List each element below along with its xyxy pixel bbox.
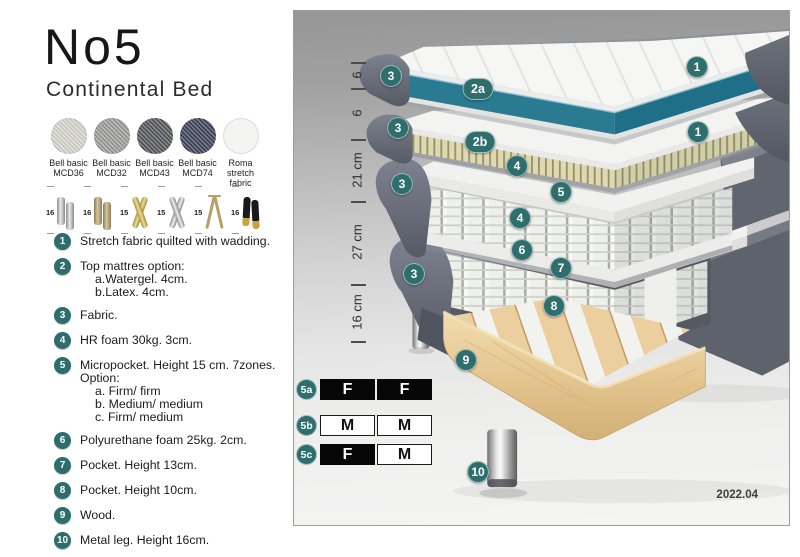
cross-silver-leg-icon bbox=[166, 195, 190, 231]
list-item: 8Pocket. Height 10cm. bbox=[54, 482, 299, 499]
list-item-text: HR foam 30kg. 3cm. bbox=[80, 332, 192, 349]
firmness-cells: MM bbox=[320, 415, 432, 436]
callout-4: 4 bbox=[506, 155, 528, 177]
list-item-number: 6 bbox=[54, 432, 71, 449]
firmness-cell: F bbox=[377, 379, 432, 400]
leg-bar bbox=[57, 197, 65, 225]
callout-5: 5 bbox=[550, 181, 572, 203]
fabric-swatch-label: Romastretch fabric bbox=[219, 158, 262, 188]
leg-height-label: 16 bbox=[46, 208, 55, 217]
leg-bar bbox=[103, 202, 111, 230]
cross-gold-leg-icon bbox=[129, 195, 153, 231]
product-subtitle: Continental Bed bbox=[46, 78, 213, 102]
black-gold-leg-icon bbox=[240, 195, 264, 231]
list-item: 10Metal leg. Height 16cm. bbox=[54, 532, 299, 549]
scale-label: 6 bbox=[350, 71, 365, 78]
firmness-cell: M bbox=[377, 444, 432, 465]
scale-label: 6 bbox=[350, 109, 365, 116]
leg-option: 16 bbox=[231, 185, 268, 235]
leg-option: 16 bbox=[46, 185, 83, 235]
list-item-line: Pocket. Height 10cm. bbox=[80, 484, 197, 497]
fabric-swatch-list: Bell basicMCD36Bell basicMCD32Bell basic… bbox=[47, 118, 262, 188]
list-item-text: Top mattres option:a.Watergel. 4cm.b.Lat… bbox=[80, 258, 188, 299]
callout-2a: 2a bbox=[463, 78, 494, 100]
list-item-line: Stretch fabric quilted with wadding. bbox=[80, 235, 270, 248]
list-item-line: Fabric. bbox=[80, 309, 118, 322]
callout-8: 8 bbox=[543, 295, 565, 317]
leg-bar bbox=[94, 197, 102, 225]
version-label: 2022.04 bbox=[716, 489, 758, 501]
callout-1: 1 bbox=[687, 121, 709, 143]
callout-5b: 5b bbox=[296, 415, 317, 436]
list-item-text: Metal leg. Height 16cm. bbox=[80, 532, 209, 549]
list-item-number: 7 bbox=[54, 457, 71, 474]
list-item: 4HR foam 30kg. 3cm. bbox=[54, 332, 299, 349]
callout-4: 4 bbox=[509, 207, 531, 229]
firmness-cells: FM bbox=[320, 444, 432, 465]
list-item-text: Stretch fabric quilted with wadding. bbox=[80, 233, 270, 250]
scale-tick bbox=[351, 341, 366, 343]
leg-height-label: 15 bbox=[194, 208, 203, 217]
firmness-cell: F bbox=[320, 444, 375, 465]
leg-option: 16 bbox=[83, 185, 120, 235]
list-item-number: 3 bbox=[54, 307, 71, 324]
list-item-line: Pocket. Height 13cm. bbox=[80, 459, 197, 472]
list-item: 9Wood. bbox=[54, 507, 299, 524]
list-item-line: Polyurethane foam 25kg. 2cm. bbox=[80, 434, 247, 447]
fabric-swatch: Bell basicMCD32 bbox=[90, 118, 133, 188]
callout-3: 3 bbox=[387, 117, 409, 139]
leg-height-label: 15 bbox=[157, 208, 166, 217]
list-item-number: 8 bbox=[54, 482, 71, 499]
callout-2b: 2b bbox=[465, 131, 496, 153]
list-item-line: Wood. bbox=[80, 509, 115, 522]
hairpin-leg-icon bbox=[203, 195, 227, 231]
leg-bar bbox=[251, 199, 260, 228]
list-item-line: c. Firm/ medium bbox=[80, 411, 299, 424]
firmness-cell: F bbox=[320, 379, 375, 400]
scale-label: 16 cm bbox=[350, 294, 365, 329]
component-list: 1Stretch fabric quilted with wadding.2To… bbox=[54, 233, 299, 557]
cylinder-bronze-leg-icon bbox=[92, 195, 116, 231]
list-item-number: 5 bbox=[54, 357, 71, 374]
fabric-swatch-circle bbox=[180, 118, 216, 154]
list-item-text: Pocket. Height 13cm. bbox=[80, 457, 197, 474]
list-item: 2Top mattres option:a.Watergel. 4cm.b.La… bbox=[54, 258, 299, 299]
list-item-number: 2 bbox=[54, 258, 71, 275]
callout-5c: 5c bbox=[296, 444, 317, 465]
fabric-swatch-circle bbox=[94, 118, 130, 154]
fabric-swatch-label: Bell basicMCD43 bbox=[135, 158, 174, 178]
list-item-line: HR foam 30kg. 3cm. bbox=[80, 334, 192, 347]
fabric-swatch-label: Bell basicMCD36 bbox=[49, 158, 88, 178]
firmness-row-5a: 5aFF bbox=[296, 379, 432, 400]
list-item-text: Polyurethane foam 25kg. 2cm. bbox=[80, 432, 247, 449]
list-item-number: 1 bbox=[54, 233, 71, 250]
fabric-swatch: Romastretch fabric bbox=[219, 118, 262, 188]
list-item: 1Stretch fabric quilted with wadding. bbox=[54, 233, 299, 250]
scale-tick bbox=[351, 139, 366, 141]
leg-option: 15 bbox=[157, 185, 194, 235]
callout-6: 6 bbox=[511, 239, 533, 261]
scale-tick bbox=[351, 284, 366, 286]
fabric-swatch-circle bbox=[51, 118, 87, 154]
leg-options-list: 161615151516 bbox=[46, 185, 268, 235]
list-item-line: Metal leg. Height 16cm. bbox=[80, 534, 209, 547]
fabric-swatch: Bell basicMCD43 bbox=[133, 118, 176, 188]
list-item-text: Wood. bbox=[80, 507, 115, 524]
scale-tick bbox=[351, 62, 366, 64]
list-item-text: Fabric. bbox=[80, 307, 118, 324]
leg-bar bbox=[66, 202, 74, 230]
leg-option: 15 bbox=[120, 185, 157, 235]
list-item: 3Fabric. bbox=[54, 307, 299, 324]
product-panel: 6621 cm27 cm16 cm 132a32b143546738910 5a… bbox=[293, 10, 790, 526]
list-item-number: 4 bbox=[54, 332, 71, 349]
list-item-number: 10 bbox=[54, 532, 71, 549]
scale-tick bbox=[351, 201, 366, 203]
fabric-swatch: Bell basicMCD74 bbox=[176, 118, 219, 188]
firmness-cells: FF bbox=[320, 379, 432, 400]
fabric-swatch: Bell basicMCD36 bbox=[47, 118, 90, 188]
scale-label: 21 cm bbox=[350, 152, 365, 187]
fabric-swatch-label: Bell basicMCD74 bbox=[178, 158, 217, 178]
leg-bar bbox=[208, 195, 221, 197]
callout-7: 7 bbox=[550, 257, 572, 279]
fabric-swatch-circle bbox=[223, 118, 259, 154]
callout-3: 3 bbox=[391, 173, 413, 195]
callout-3: 3 bbox=[403, 263, 425, 285]
callout-9: 9 bbox=[455, 349, 477, 371]
leg-option: 15 bbox=[194, 185, 231, 235]
product-title: No5 bbox=[44, 18, 145, 76]
leg-height-label: 15 bbox=[120, 208, 129, 217]
cylinder-silver-leg-icon bbox=[55, 195, 79, 231]
firmness-row-5b: 5bMM bbox=[296, 415, 432, 436]
firmness-cell: M bbox=[320, 415, 375, 436]
list-item-line: b.Latex. 4cm. bbox=[80, 286, 188, 299]
list-item-line: Micropocket. Height 15 cm. 7zones. Optio… bbox=[80, 359, 299, 385]
front-leg bbox=[487, 429, 517, 487]
leg-height-label: 16 bbox=[83, 208, 92, 217]
fabric-swatch-circle bbox=[137, 118, 173, 154]
list-item: 7Pocket. Height 13cm. bbox=[54, 457, 299, 474]
firmness-cell: M bbox=[377, 415, 432, 436]
scale-tick bbox=[351, 88, 366, 90]
callout-1: 1 bbox=[686, 56, 708, 78]
list-item-text: Micropocket. Height 15 cm. 7zones. Optio… bbox=[80, 357, 299, 424]
list-item: 6Polyurethane foam 25kg. 2cm. bbox=[54, 432, 299, 449]
leg-bar bbox=[213, 196, 223, 229]
callout-3: 3 bbox=[380, 65, 402, 87]
list-item-text: Pocket. Height 10cm. bbox=[80, 482, 197, 499]
list-item-number: 9 bbox=[54, 507, 71, 524]
callout-10: 10 bbox=[467, 461, 489, 483]
fabric-swatch-label: Bell basicMCD32 bbox=[92, 158, 131, 178]
list-item: 5Micropocket. Height 15 cm. 7zones. Opti… bbox=[54, 357, 299, 424]
firmness-row-5c: 5cFM bbox=[296, 444, 432, 465]
callout-5a: 5a bbox=[296, 379, 317, 400]
leg-bar bbox=[242, 196, 251, 225]
leg-height-label: 16 bbox=[231, 208, 240, 217]
scale-label: 27 cm bbox=[350, 224, 365, 259]
